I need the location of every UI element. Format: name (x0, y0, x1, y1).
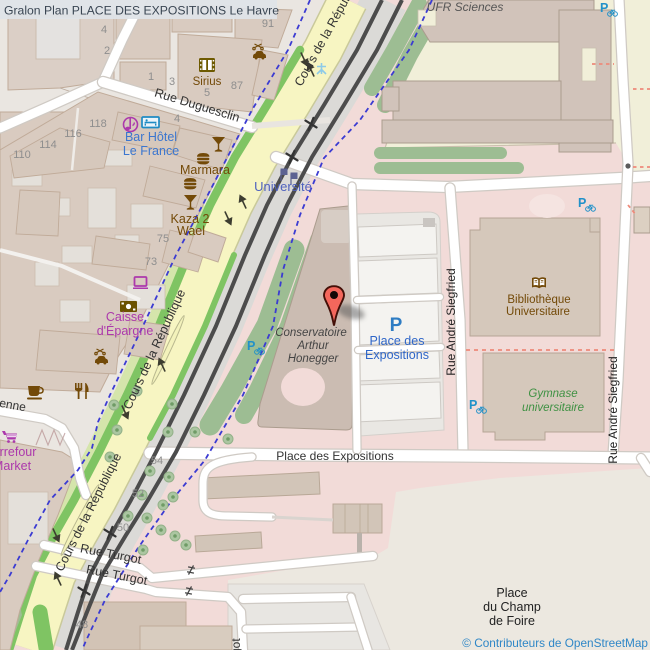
svg-text:2: 2 (104, 45, 110, 57)
svg-text:Bar Hôtel: Bar Hôtel (125, 130, 177, 144)
svg-text:110: 110 (13, 149, 31, 161)
svg-text:75: 75 (157, 233, 169, 245)
svg-text:UFR Sciences: UFR Sciences (427, 0, 504, 14)
svg-text:5: 5 (204, 87, 210, 99)
svg-text:Caisse: Caisse (106, 310, 144, 324)
svg-text:87: 87 (231, 80, 243, 92)
svg-text:Expositions: Expositions (365, 348, 429, 362)
svg-text:Gralon Plan PLACE DES EXPOSITI: Gralon Plan PLACE DES EXPOSITIONS Le Hav… (4, 4, 279, 18)
svg-text:Rue Turgot: Rue Turgot (229, 638, 243, 650)
svg-text:universitaire: universitaire (522, 402, 584, 414)
svg-text:116: 116 (64, 128, 82, 140)
svg-text:Université: Université (254, 179, 312, 194)
svg-text:P: P (600, 1, 608, 15)
svg-text:Honegger: Honegger (288, 353, 340, 365)
svg-text:3: 3 (169, 76, 175, 88)
svg-text:Place: Place (496, 586, 527, 600)
svg-text:50: 50 (117, 522, 129, 534)
svg-text:Sirius: Sirius (193, 76, 222, 88)
svg-text:Rue André Siegfried: Rue André Siegfried (444, 268, 458, 375)
svg-text:54: 54 (151, 455, 163, 467)
svg-text:P: P (578, 196, 586, 210)
svg-text:Marmara: Marmara (180, 163, 230, 177)
svg-text:1: 1 (148, 71, 154, 83)
svg-text:du Champ: du Champ (483, 600, 541, 614)
svg-text:P: P (247, 339, 255, 353)
svg-text:Arthur: Arthur (296, 340, 329, 352)
svg-text:118: 118 (89, 118, 107, 130)
svg-text:4: 4 (174, 113, 180, 125)
svg-text:4: 4 (101, 24, 107, 36)
svg-text:Rue André Siegfried: Rue André Siegfried (606, 356, 620, 463)
svg-text:114: 114 (39, 139, 57, 151)
svg-text:Conservatoire: Conservatoire (275, 327, 347, 339)
svg-text:52: 52 (132, 488, 144, 500)
svg-text:de Foire: de Foire (489, 614, 535, 628)
svg-text:Gymnase: Gymnase (528, 388, 577, 400)
svg-text:Carrefour: Carrefour (0, 445, 36, 459)
svg-text:Wael: Wael (177, 224, 205, 238)
svg-text:© Contributeurs de OpenStreetM: © Contributeurs de OpenStreetMap (462, 636, 648, 650)
svg-text:P: P (390, 315, 403, 336)
svg-text:d'Épargne: d'Épargne (97, 323, 154, 338)
svg-text:73: 73 (145, 256, 157, 268)
svg-text:Universitaire: Universitaire (506, 306, 570, 318)
svg-text:Le France: Le France (123, 144, 179, 158)
svg-text:91: 91 (262, 18, 274, 30)
svg-text:P: P (469, 398, 477, 412)
svg-text:Bibliothèque: Bibliothèque (507, 294, 570, 306)
svg-text:Place des: Place des (370, 334, 425, 348)
svg-text:48: 48 (76, 619, 88, 631)
svg-text:Place des Expositions: Place des Expositions (276, 449, 393, 463)
svg-text:Market: Market (0, 459, 32, 473)
